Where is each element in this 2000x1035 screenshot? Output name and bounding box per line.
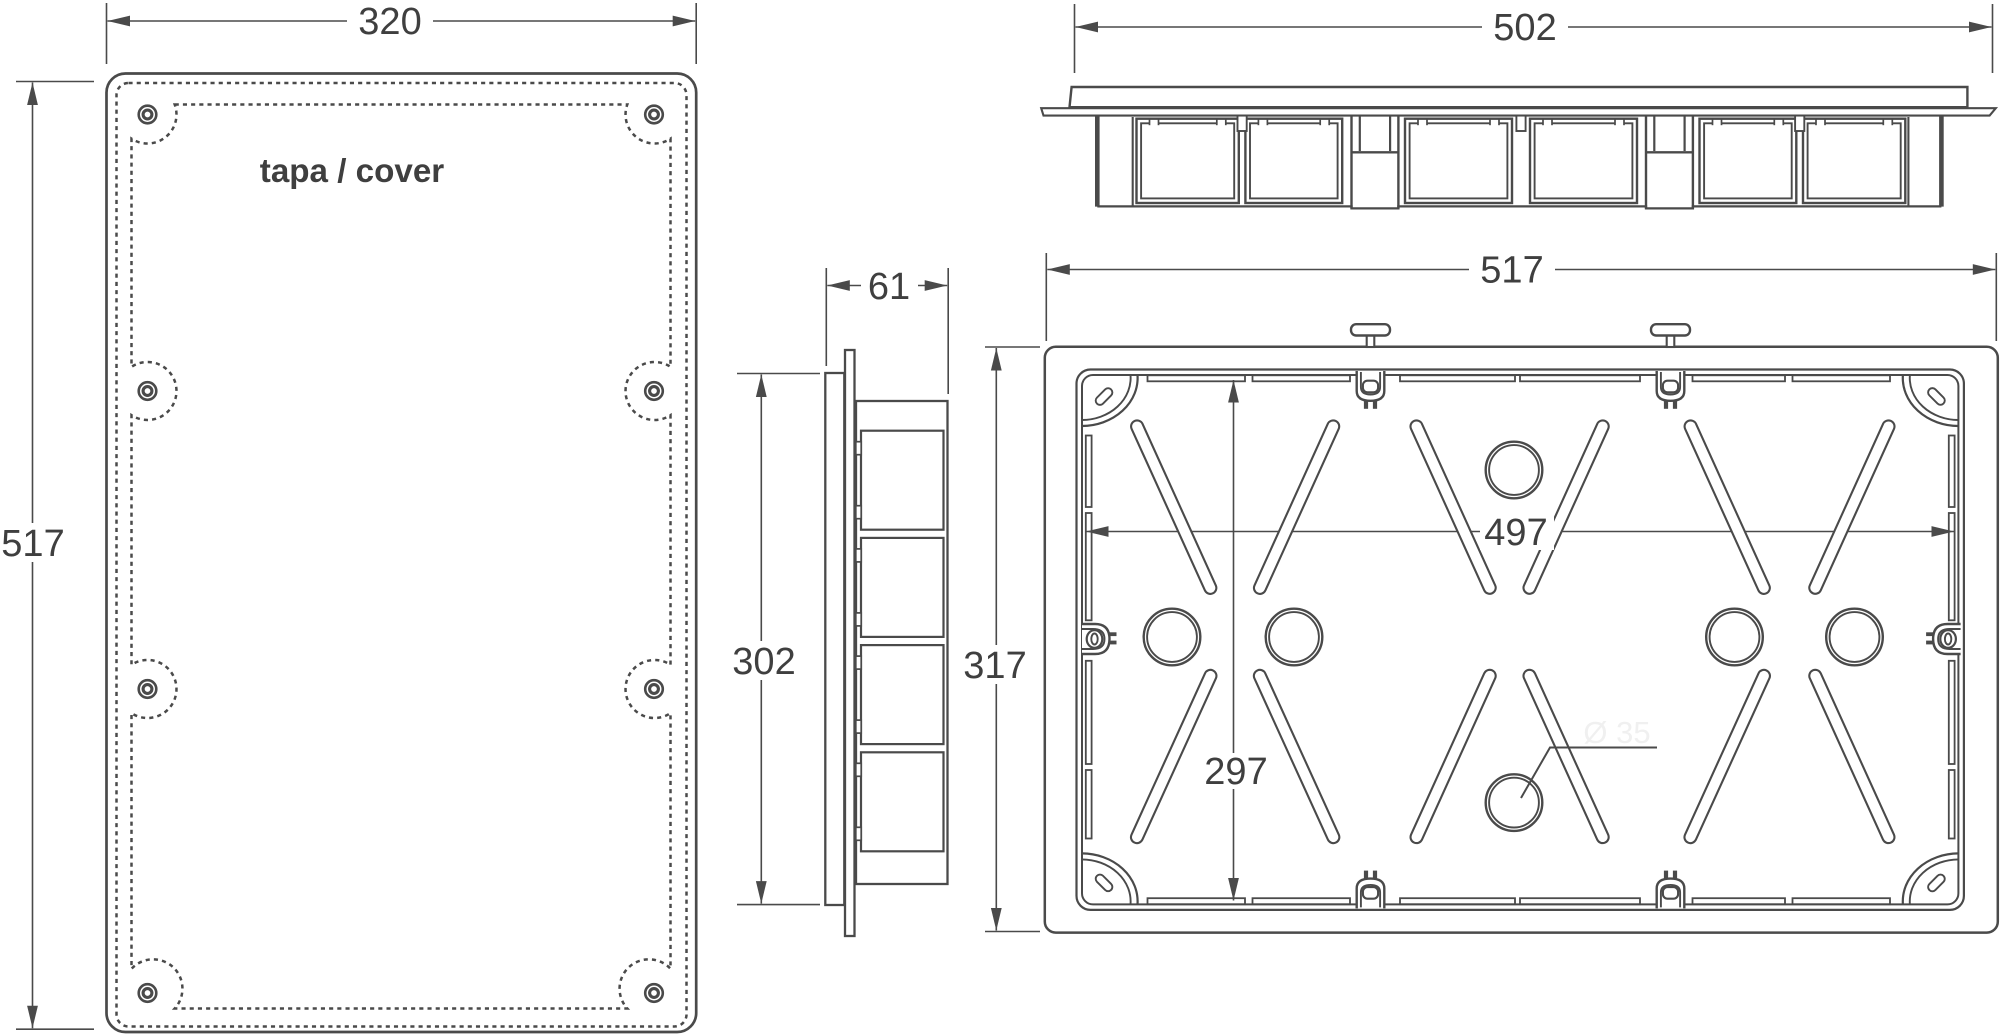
svg-text:tapa / cover: tapa / cover [260,153,445,190]
svg-text:517: 517 [1480,250,1543,292]
svg-text:320: 320 [358,1,421,43]
svg-text:517: 517 [1,523,64,565]
svg-text:302: 302 [732,641,795,683]
svg-text:317: 317 [963,645,1026,687]
svg-text:502: 502 [1493,7,1556,49]
svg-text:61: 61 [868,266,910,308]
svg-text:Ø 35: Ø 35 [1583,715,1650,750]
svg-text:297: 297 [1204,751,1267,793]
svg-text:497: 497 [1484,512,1547,554]
